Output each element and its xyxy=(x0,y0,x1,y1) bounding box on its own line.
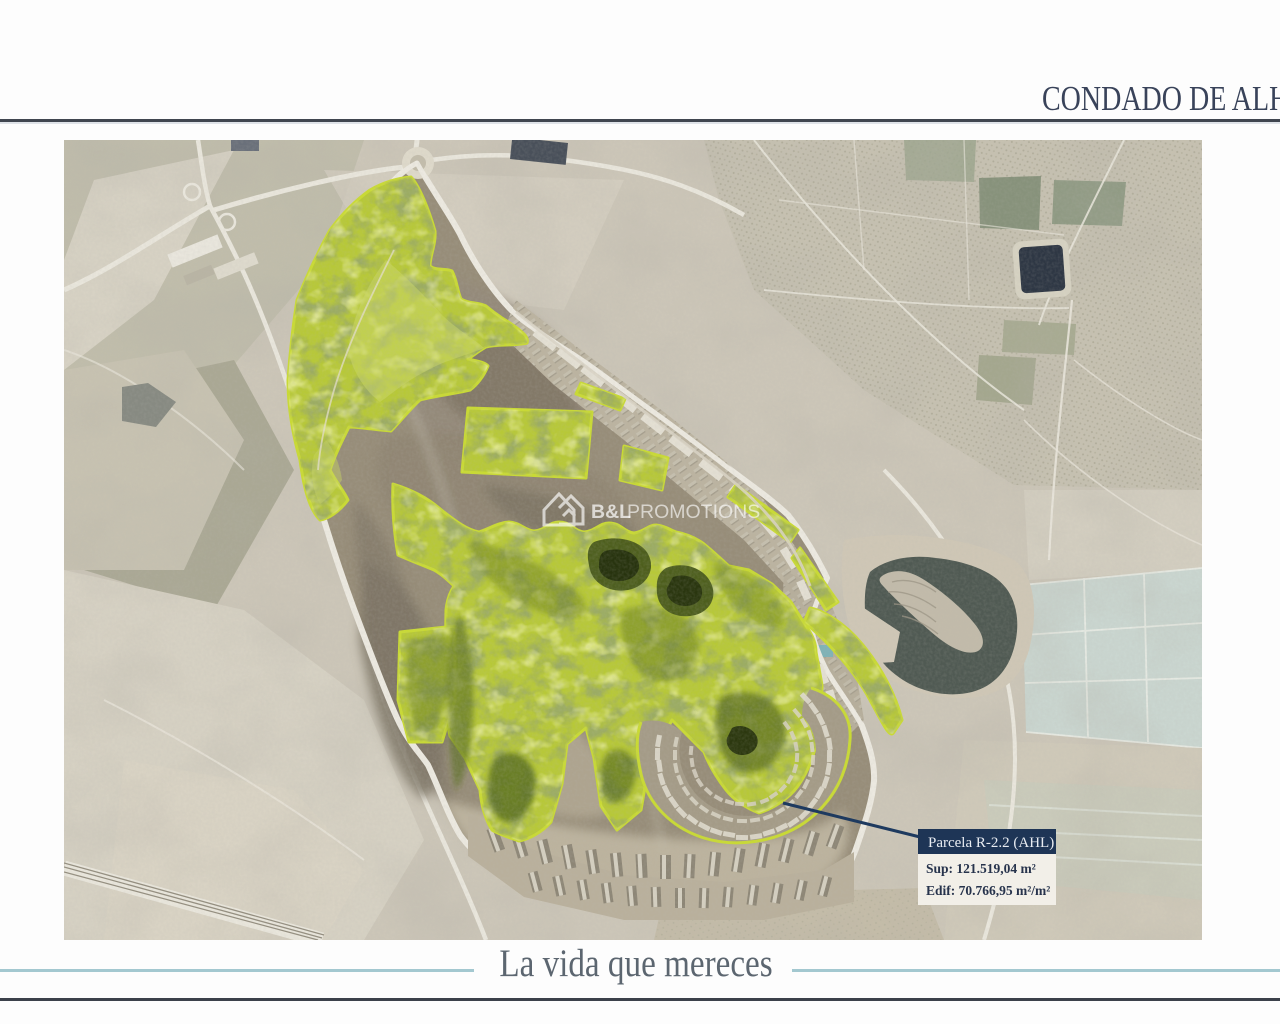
svg-text:Parcela R-2.2 (AHL): Parcela R-2.2 (AHL) xyxy=(928,835,1054,851)
svg-text:Sup: 121.519,04 m²: Sup: 121.519,04 m² xyxy=(926,861,1036,876)
svg-text:B&L: B&L xyxy=(591,501,631,523)
svg-text:PROMOTIONS: PROMOTIONS xyxy=(627,501,760,523)
svg-text:Edif: 70.766,95 m²/m²: Edif: 70.766,95 m²/m² xyxy=(926,883,1050,898)
